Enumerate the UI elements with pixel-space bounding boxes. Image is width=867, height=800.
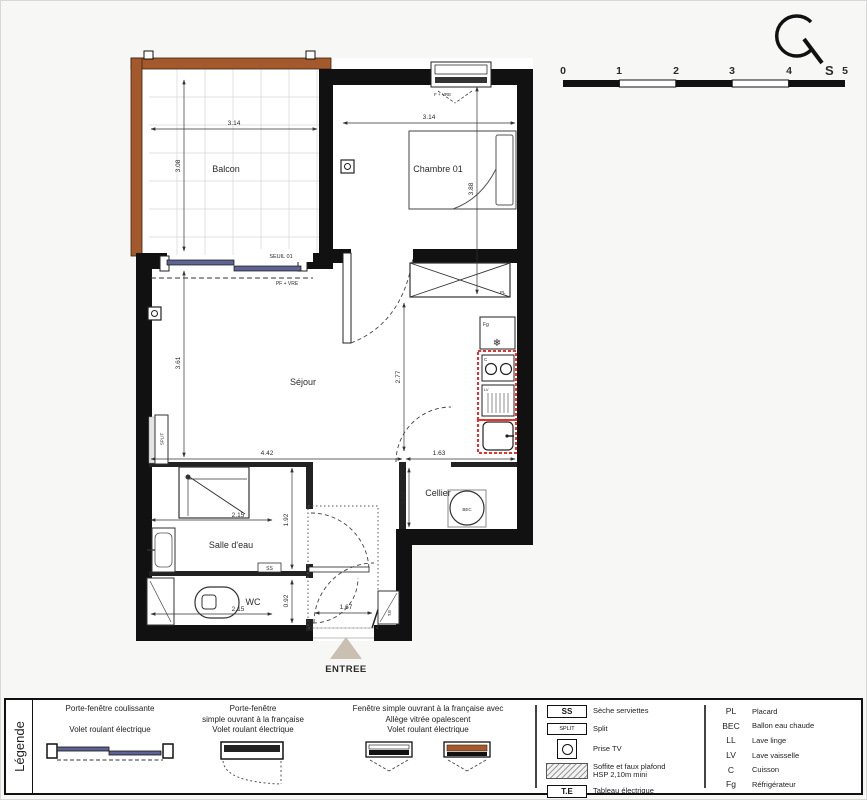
seuil-label: SEUIL 01 <box>269 254 292 260</box>
cooktop: C <box>482 355 514 381</box>
snowflake-icon: ❄ <box>493 338 501 349</box>
legend-item-line: Porte-fenêtre coulissante <box>36 704 184 715</box>
legend-item-sliding-door: Porte-fenêtre coulissante Volet roulant … <box>36 704 184 770</box>
legend-title: Légende <box>12 721 27 772</box>
prise-tv-label: Prise TV <box>593 745 622 754</box>
fridge-label: Fg <box>483 322 489 328</box>
french-door-symbol <box>213 740 293 786</box>
abbr-row-lv: LV Lave vaisselle <box>710 748 866 763</box>
soffit-label-line2: HSP 2,10m mini <box>593 771 665 780</box>
dishwasher: LV <box>482 385 514 416</box>
scale-tick-3: 3 <box>729 65 735 77</box>
room-label-cellier: Cellier <box>425 488 451 498</box>
door-panel <box>234 266 301 271</box>
towel-dryer-label: SS <box>266 566 273 572</box>
legend-item-line: simple ouvrant à la française <box>184 715 322 726</box>
scale-bar: 0 1 2 3 4 5 <box>560 65 848 87</box>
floor-plan-page: { "compass": { "south": "S" }, "scale_ba… <box>0 0 867 800</box>
abbr-key: LV <box>710 750 752 760</box>
legend-row-ss: SS Sèche serviettes <box>541 702 703 720</box>
bec-label: BEC <box>462 507 472 512</box>
dim-sejour-h: 3.61 <box>175 356 182 369</box>
abbr-key: C <box>710 765 752 775</box>
dim-sejour-w: 4.42 <box>261 450 274 457</box>
abbr-key: Fg <box>710 779 752 789</box>
legend-item-line: Volet roulant électrique <box>324 725 532 736</box>
abbr-label: Cuisson <box>752 765 779 774</box>
split-label: Split <box>593 725 608 734</box>
wc-door-leaf <box>309 567 369 572</box>
dim-kitchen-h: 2.77 <box>395 370 402 383</box>
soffit-hatch-symbol <box>546 763 588 779</box>
window-label: F + VRE <box>434 92 451 97</box>
te-symbol: T.E <box>547 785 587 798</box>
door-panel <box>167 260 234 265</box>
room-label-sejour: Séjour <box>290 377 316 387</box>
legend-item-french-door: Porte-fenêtre simple ouvrant à la frança… <box>184 704 322 791</box>
dishwasher-label: LV <box>484 387 489 392</box>
dim-sdb-h: 1.92 <box>283 513 290 526</box>
abbr-label: Lave vaisselle <box>752 751 799 760</box>
dim-wc-w: 2.15 <box>232 606 245 613</box>
legend-row-te: T.E Tableau électrique <box>541 782 703 800</box>
window-symbol-opalescent <box>442 740 492 774</box>
room-label-balcon: Balcon <box>212 164 240 174</box>
abbr-key: BEC <box>710 721 752 731</box>
legend-item-line: Volet roulant électrique <box>184 725 322 736</box>
abbr-label: Lave linge <box>752 736 786 745</box>
abbr-row-bec: BEC Ballon eau chaude <box>710 719 866 734</box>
rail-post-tick <box>144 51 153 59</box>
abbr-key: LL <box>710 735 752 745</box>
tv-socket-icon <box>562 744 573 755</box>
legend-divider <box>704 705 706 788</box>
abbr-row-pl: PL Placard <box>710 704 866 719</box>
sink <box>483 422 514 450</box>
dim-balcon-w: 3.14 <box>228 120 241 127</box>
placard-crossed-box: PL <box>410 263 510 297</box>
sliding-door-symbol <box>46 739 174 765</box>
towel-dryer: SS <box>258 563 281 572</box>
dim-cellier-w: 1.63 <box>433 450 446 457</box>
dim-chambre-h: 3.88 <box>468 182 475 195</box>
abbr-row-fg: Fg Réfrigérateur <box>710 777 866 792</box>
electrical-panel-label: T.E <box>387 610 392 617</box>
washing-machine <box>147 578 174 625</box>
abbr-label: Placard <box>752 707 777 716</box>
abbr-key: PL <box>710 706 752 716</box>
toilet <box>195 587 239 618</box>
split-label: SPLIT <box>160 433 165 446</box>
window-symbols-row <box>324 736 532 774</box>
placard-label: PL <box>500 290 506 295</box>
te-label: Tableau électrique <box>593 787 654 796</box>
dim-hall-w: 1.67 <box>340 604 353 611</box>
legend-abbreviations: PL Placard BEC Ballon eau chaude LL Lave… <box>710 704 866 792</box>
rail-post-tick <box>306 51 315 59</box>
entry-label: ENTREE <box>325 664 367 675</box>
shower <box>179 467 249 518</box>
legend-item-line: Fenêtre simple ouvrant à la française av… <box>324 704 532 715</box>
scale-tick-1: 1 <box>616 65 622 77</box>
scale-tick-0: 0 <box>560 65 566 77</box>
ss-symbol: SS <box>547 705 587 718</box>
legend-title-band: Légende <box>6 700 33 793</box>
scale-tick-2: 2 <box>673 65 679 77</box>
dim-wc-h: 0.92 <box>283 594 290 607</box>
room-label-wc: WC <box>246 597 261 607</box>
scale-bar-ticks: 0 1 2 3 4 5 <box>560 65 848 77</box>
abbr-label: Ballon eau chaude <box>752 721 814 730</box>
legend-row-soffit: Soffite et faux plafond HSP 2,10m mini <box>541 760 703 782</box>
scale-tick-5: 5 <box>842 65 848 77</box>
dim-chambre-w: 3.14 <box>423 114 436 121</box>
legend-item-line: Volet roulant électrique <box>36 725 184 736</box>
legend-divider <box>535 705 537 788</box>
shower-head <box>186 475 191 480</box>
electrical-panel: T.E <box>378 591 399 624</box>
dim-cellier-h: 1.30 <box>400 491 407 504</box>
room-label-salle-deau: Salle d'eau <box>209 540 253 550</box>
abbr-label: Réfrigérateur <box>752 780 796 789</box>
legend-item-line: Allège vitrée opalescent <box>324 715 532 726</box>
legend-item-simple-window: Fenêtre simple ouvrant à la française av… <box>324 704 532 774</box>
compass-south-label: S <box>825 63 834 78</box>
pf-vre-label: PF + VRE <box>276 281 299 287</box>
legend-row-prise-tv: Prise TV <box>541 738 703 760</box>
room-label-chambre: Chambre 01 <box>413 164 463 174</box>
floor-plan-drawing: F + VRE SEUIL 01 PF + VRE SPLIT <box>1 1 867 696</box>
prise-tv-symbol <box>557 739 577 759</box>
tv-socket-chambre <box>341 160 354 173</box>
dim-balcon-h: 3.08 <box>175 159 182 172</box>
fridge: Fg ❄ <box>480 317 515 349</box>
window-symbol-white <box>364 740 414 774</box>
split-unit: SPLIT <box>149 415 168 464</box>
split-symbol: SPLIT <box>547 723 587 735</box>
ss-label: Sèche serviettes <box>593 707 648 716</box>
abbr-row-c: C Cuisson <box>710 762 866 777</box>
tv-socket-sejour <box>148 307 161 320</box>
scale-tick-4: 4 <box>786 65 792 77</box>
legend-panel: Légende Porte-fenêtre coulissante Volet … <box>4 698 863 795</box>
abbr-row-ll: LL Lave linge <box>710 733 866 748</box>
legend-symbol-rows: SS Sèche serviettes SPLIT Split Prise TV… <box>541 702 703 800</box>
legend-row-split: SPLIT Split <box>541 720 703 738</box>
legend-item-line: Porte-fenêtre <box>184 704 322 715</box>
dim-sdb-w: 2.15 <box>232 512 245 519</box>
